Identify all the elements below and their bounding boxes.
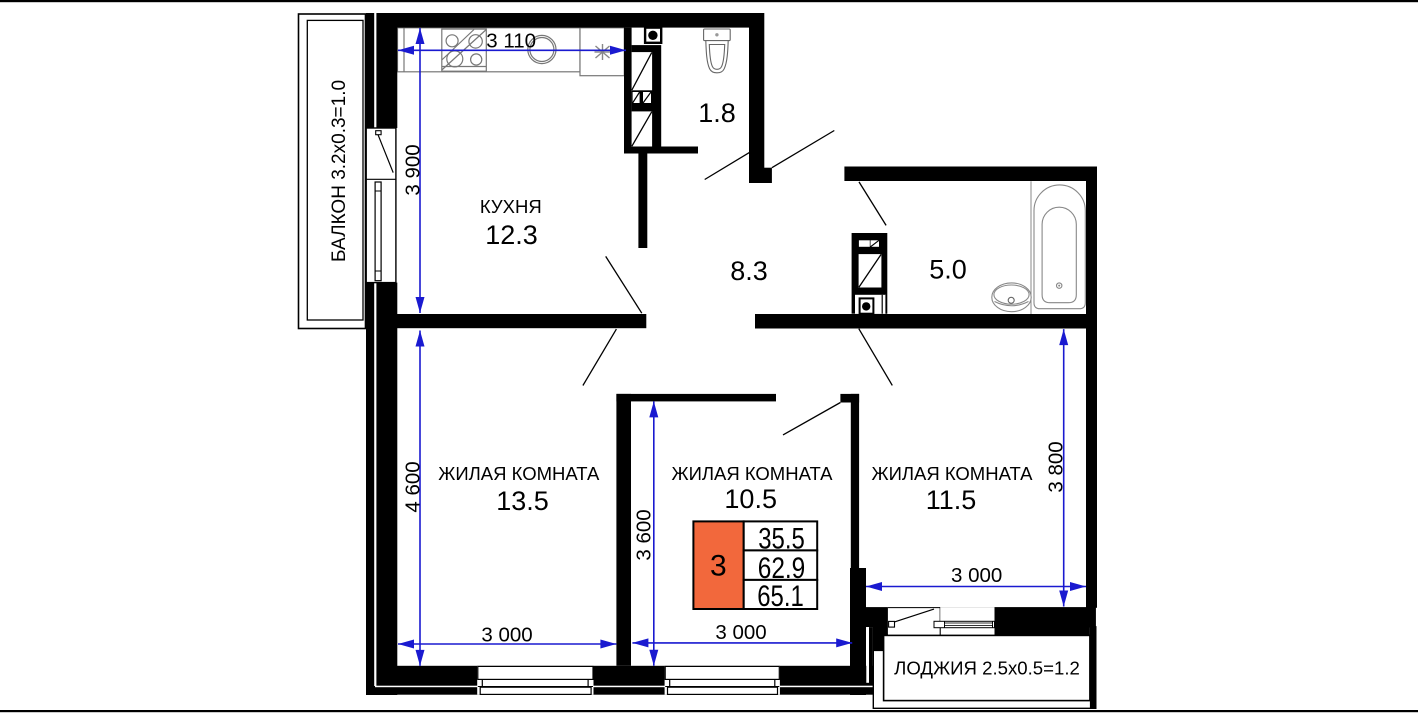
svg-text:ЖИЛАЯ КОМНАТА: ЖИЛАЯ КОМНАТА [438, 463, 600, 484]
svg-text:1.8: 1.8 [698, 98, 736, 128]
svg-text:35.5: 35.5 [758, 523, 805, 556]
svg-text:3 900: 3 900 [401, 144, 424, 195]
svg-text:ЖИЛАЯ КОМНАТА: ЖИЛАЯ КОМНАТА [871, 463, 1033, 484]
svg-text:ЛОДЖИЯ 2.5х0.5=1.2: ЛОДЖИЯ 2.5х0.5=1.2 [894, 658, 1080, 679]
svg-text:11.5: 11.5 [926, 485, 977, 515]
svg-text:65.1: 65.1 [757, 580, 804, 613]
svg-text:13.5: 13.5 [496, 486, 549, 516]
svg-text:4 600: 4 600 [401, 461, 424, 512]
svg-text:3 000: 3 000 [481, 623, 532, 646]
svg-text:3 000: 3 000 [715, 621, 766, 644]
svg-text:КУХНЯ: КУХНЯ [480, 196, 542, 217]
svg-text:3 600: 3 600 [633, 509, 656, 560]
svg-text:3 110: 3 110 [486, 29, 536, 52]
svg-text:12.3: 12.3 [485, 220, 538, 250]
svg-text:ЖИЛАЯ КОМНАТА: ЖИЛАЯ КОМНАТА [671, 463, 833, 484]
svg-text:3: 3 [710, 550, 727, 583]
svg-text:БАЛКОН 3.2х0.3=1.0: БАЛКОН 3.2х0.3=1.0 [329, 80, 350, 262]
svg-text:3 000: 3 000 [951, 564, 1002, 587]
svg-text:5.0: 5.0 [929, 255, 967, 285]
svg-text:8.3: 8.3 [730, 256, 768, 286]
svg-text:3 800: 3 800 [1045, 441, 1068, 492]
svg-text:10.5: 10.5 [724, 484, 777, 514]
